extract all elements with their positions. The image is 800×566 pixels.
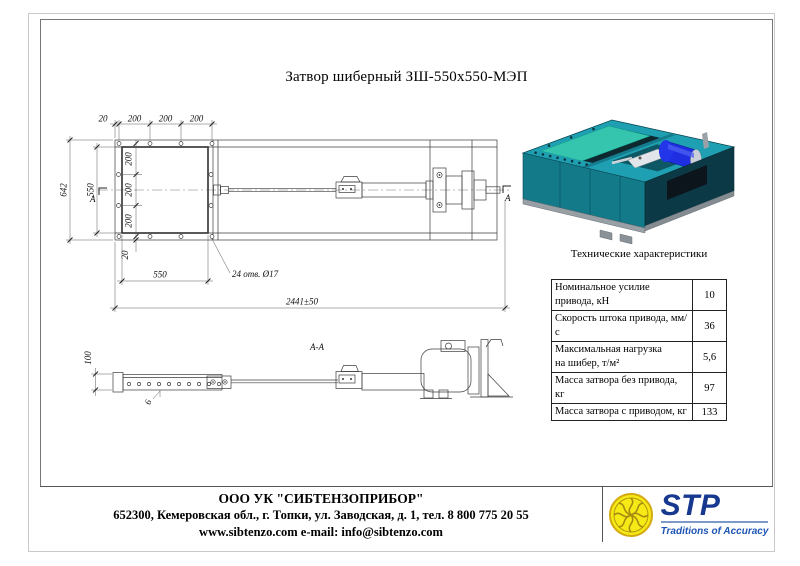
holes-note: 24 отв. Ø17 xyxy=(232,269,279,279)
company-address: 652300, Кемеровская обл., г. Топки, ул. … xyxy=(40,507,602,524)
side-view-drawing: А-А xyxy=(83,340,513,406)
dim-label: 200 xyxy=(124,152,134,166)
table-row: Скорость штока привода, мм/с 36 xyxy=(552,311,726,342)
top-view-dimensions: 20 200 200 200 642 550 200 20 xyxy=(59,114,511,313)
spec-label: Масса затвора без привода, кг xyxy=(555,375,677,400)
dim-label: 200 xyxy=(190,114,204,124)
actuator-side-view xyxy=(207,340,513,399)
company-info: ООО УК "СИБТЕНЗОПРИБОР" 652300, Кемеровс… xyxy=(40,487,602,542)
dim-label: 200 xyxy=(128,114,142,124)
3d-render xyxy=(523,120,734,244)
dim-label: 20 xyxy=(120,250,130,260)
section-view-label: А-А xyxy=(309,342,324,352)
logo-text: STP xyxy=(661,492,769,523)
dim-label: 550 xyxy=(86,183,96,197)
spec-value: 97 xyxy=(692,373,726,403)
spec-label: Скорость штока привода, мм/с xyxy=(555,313,687,338)
logo-emblem-icon xyxy=(608,492,654,538)
title-block-footer: ООО УК "СИБТЕНЗОПРИБОР" 652300, Кемеровс… xyxy=(40,486,773,542)
dim-label-total-length: 2441±50 xyxy=(286,297,318,307)
table-row: Масса затвора без привода, кг 97 xyxy=(552,373,726,404)
side-bolt-holes xyxy=(127,382,220,385)
specs-heading: Технические характеристики xyxy=(539,248,739,260)
spec-value: 10 xyxy=(692,280,726,310)
logo-text-block: STP Traditions of Accuracy xyxy=(661,492,769,537)
table-row: Номинальное усилие привода, кН 10 xyxy=(552,280,726,311)
dim-label: 200 xyxy=(124,183,134,197)
side-view-dimensions: 100 6 xyxy=(83,351,160,406)
spec-value: 5,6 xyxy=(692,342,726,372)
spec-value: 133 xyxy=(692,404,726,420)
dim-label: 20 xyxy=(99,114,109,124)
dim-label: 200 xyxy=(159,114,173,124)
dim-label: 550 xyxy=(153,270,167,280)
section-marks: А А xyxy=(89,186,511,204)
spec-value: 36 xyxy=(692,311,726,341)
company-name: ООО УК "СИБТЕНЗОПРИБОР" xyxy=(40,490,602,507)
table-row: Масса затвора с приводом, кг 133 xyxy=(552,404,726,420)
logo-tagline: Traditions of Accuracy xyxy=(661,526,769,537)
table-row: Максимальная нагрузкана шибер, т/м² 5,6 xyxy=(552,342,726,373)
company-web: www.sibtenzo.com e-mail: info@sibtenzo.c… xyxy=(40,524,602,541)
spec-label: Максимальная нагрузка xyxy=(555,344,662,355)
specs-table: Номинальное усилие привода, кН 10 Скорос… xyxy=(551,279,727,421)
dim-label: 642 xyxy=(59,183,69,197)
logo-block: STP Traditions of Accuracy xyxy=(602,487,773,542)
spec-label: Номинальное усилие привода, кН xyxy=(555,282,650,307)
dim-label: 200 xyxy=(124,214,134,228)
spec-label: Масса затвора с приводом, кг xyxy=(555,406,687,417)
dim-label: 100 xyxy=(83,351,93,365)
dim-label: 6 xyxy=(143,398,154,405)
top-view-drawing: А А 20 200 200 200 642 xyxy=(59,114,513,313)
drawing-sheet: { "title": "Затвор шиберный ЗШ-550х550-М… xyxy=(0,0,800,566)
